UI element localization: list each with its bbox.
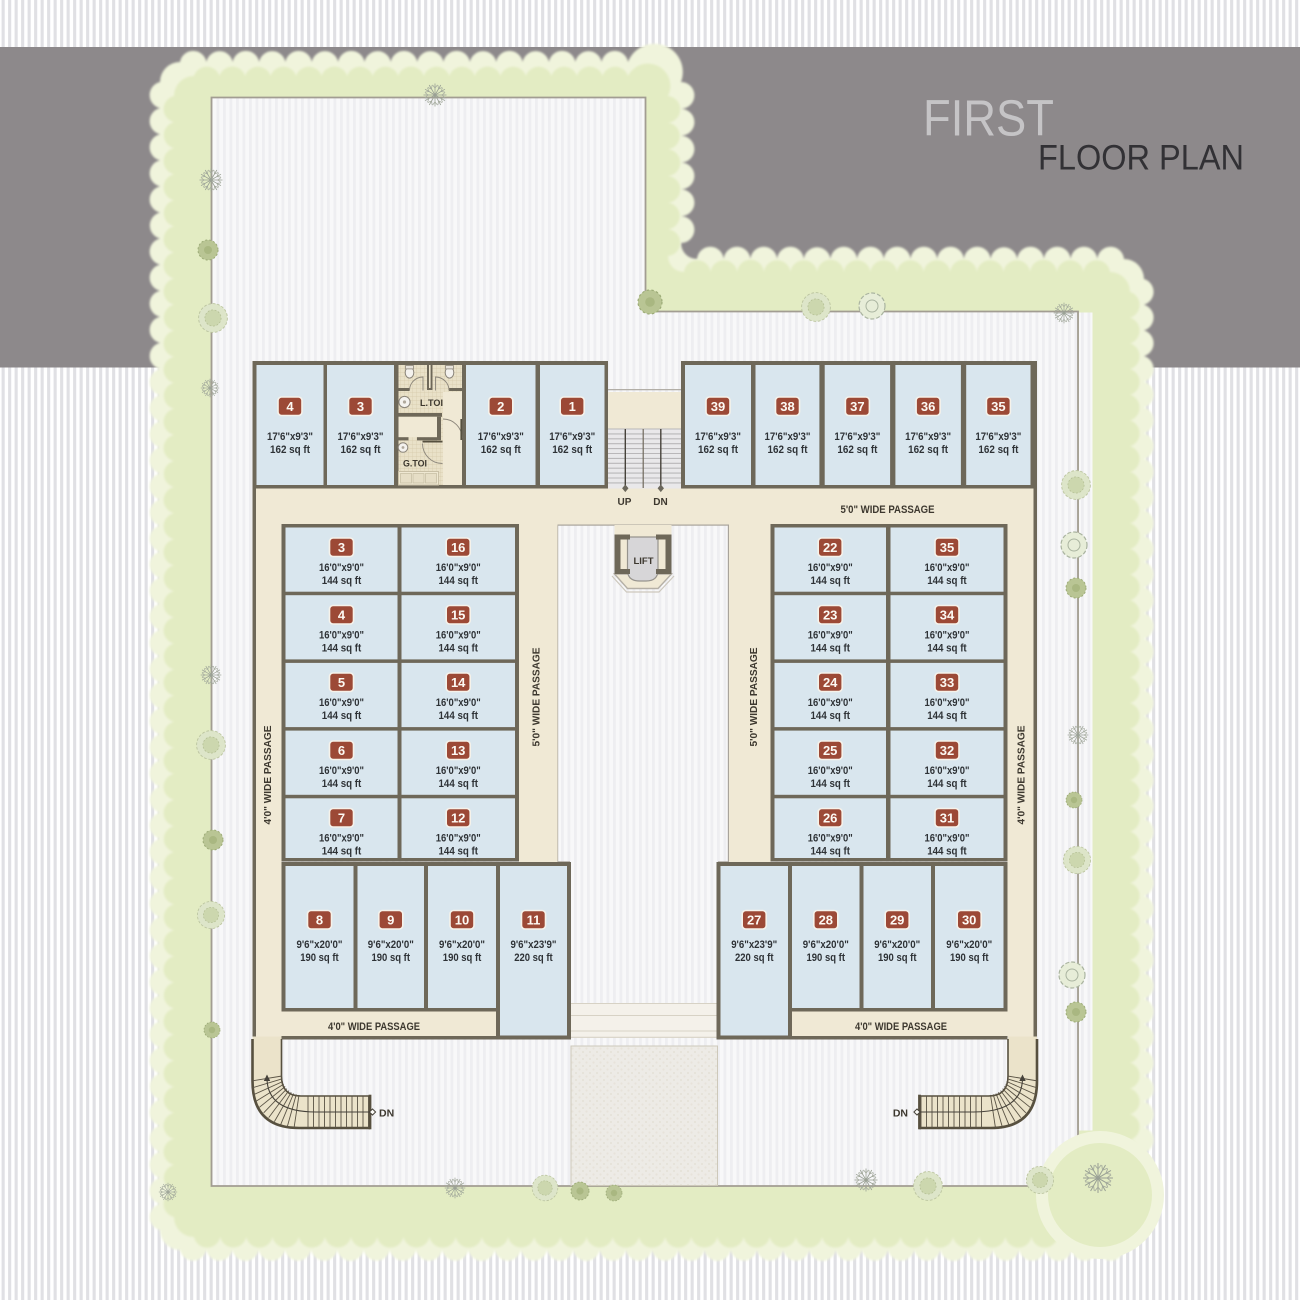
svg-text:190 sq ft: 190 sq ft [878,952,917,964]
svg-text:12: 12 [451,811,465,826]
svg-text:36: 36 [921,399,935,414]
svg-text:16'0"x9'0": 16'0"x9'0" [925,697,970,709]
svg-text:FIRST: FIRST [923,90,1054,147]
svg-text:6: 6 [338,743,345,758]
svg-text:17'6"x9'3": 17'6"x9'3" [695,431,741,443]
svg-text:29: 29 [890,913,904,928]
svg-text:144 sq ft: 144 sq ft [927,846,967,858]
svg-text:17'6"x9'3": 17'6"x9'3" [549,431,595,443]
svg-text:10: 10 [455,913,469,928]
svg-text:9'6"x23'9": 9'6"x23'9" [731,939,777,951]
svg-text:34: 34 [940,608,955,623]
svg-text:144 sq ft: 144 sq ft [439,778,479,790]
svg-text:16'0"x9'0": 16'0"x9'0" [808,833,853,845]
svg-text:24: 24 [823,675,838,690]
svg-text:16'0"x9'0": 16'0"x9'0" [436,833,481,845]
svg-text:9'6"x20'0": 9'6"x20'0" [946,939,992,951]
svg-text:35: 35 [940,540,954,555]
svg-text:16'0"x9'0": 16'0"x9'0" [808,630,853,642]
svg-text:17'6"x9'3": 17'6"x9'3" [338,431,384,443]
svg-text:L.TOI: L.TOI [420,398,443,408]
svg-text:15: 15 [451,608,465,623]
svg-text:16'0"x9'0": 16'0"x9'0" [319,562,364,574]
svg-text:9'6"x20'0": 9'6"x20'0" [297,939,343,951]
svg-text:144 sq ft: 144 sq ft [322,846,362,858]
svg-text:16'0"x9'0": 16'0"x9'0" [319,765,364,777]
svg-text:17'6"x9'3": 17'6"x9'3" [834,431,880,443]
svg-text:DN: DN [893,1108,908,1120]
svg-text:25: 25 [823,743,837,758]
svg-text:LIFT: LIFT [633,556,653,567]
svg-text:4: 4 [286,399,294,414]
svg-text:1: 1 [569,399,576,414]
svg-text:5: 5 [338,675,345,690]
svg-text:162 sq ft: 162 sq ft [837,444,877,456]
svg-text:144 sq ft: 144 sq ft [811,846,851,858]
svg-text:27: 27 [747,913,761,928]
svg-text:37: 37 [850,399,864,414]
svg-text:8: 8 [316,913,323,928]
svg-text:FLOOR PLAN: FLOOR PLAN [1038,138,1244,178]
svg-text:162 sq ft: 162 sq ft [698,444,738,456]
svg-text:162 sq ft: 162 sq ft [978,444,1018,456]
svg-text:4'0" WIDE PASSAGE: 4'0" WIDE PASSAGE [1016,726,1028,825]
svg-text:16'0"x9'0": 16'0"x9'0" [319,630,364,642]
svg-text:31: 31 [940,811,954,826]
svg-text:16'0"x9'0": 16'0"x9'0" [808,765,853,777]
svg-text:5'0" WIDE PASSAGE: 5'0" WIDE PASSAGE [531,648,543,747]
svg-text:190 sq ft: 190 sq ft [300,952,339,964]
svg-text:16'0"x9'0": 16'0"x9'0" [319,833,364,845]
svg-text:3: 3 [338,540,345,555]
svg-text:3: 3 [357,399,364,414]
svg-text:9'6"x20'0": 9'6"x20'0" [803,939,849,951]
svg-text:144 sq ft: 144 sq ft [322,710,362,722]
svg-text:144 sq ft: 144 sq ft [927,643,967,655]
svg-text:144 sq ft: 144 sq ft [811,643,851,655]
svg-text:9'6"x20'0": 9'6"x20'0" [874,939,920,951]
svg-text:4'0" WIDE PASSAGE: 4'0" WIDE PASSAGE [855,1021,947,1033]
svg-text:144 sq ft: 144 sq ft [439,643,479,655]
svg-text:144 sq ft: 144 sq ft [811,778,851,790]
svg-text:4: 4 [338,608,346,623]
svg-text:17'6"x9'3": 17'6"x9'3" [478,431,524,443]
svg-text:162 sq ft: 162 sq ft [908,444,948,456]
svg-text:144 sq ft: 144 sq ft [927,778,967,790]
svg-text:16'0"x9'0": 16'0"x9'0" [808,562,853,574]
svg-text:16'0"x9'0": 16'0"x9'0" [319,697,364,709]
svg-text:144 sq ft: 144 sq ft [322,575,362,587]
svg-text:16'0"x9'0": 16'0"x9'0" [925,630,970,642]
svg-text:144 sq ft: 144 sq ft [439,846,479,858]
svg-text:16: 16 [451,540,465,555]
svg-text:190 sq ft: 190 sq ft [950,952,989,964]
svg-text:14: 14 [451,675,466,690]
svg-text:5'0" WIDE PASSAGE: 5'0" WIDE PASSAGE [748,648,760,747]
svg-text:22: 22 [823,540,837,555]
svg-text:190 sq ft: 190 sq ft [807,952,846,964]
svg-text:32: 32 [940,743,954,758]
svg-text:16'0"x9'0": 16'0"x9'0" [925,562,970,574]
svg-text:162 sq ft: 162 sq ft [481,444,521,456]
svg-text:16'0"x9'0": 16'0"x9'0" [925,765,970,777]
svg-text:162 sq ft: 162 sq ft [341,444,381,456]
svg-text:39: 39 [711,399,725,414]
svg-text:220 sq ft: 220 sq ft [735,952,774,964]
svg-text:144 sq ft: 144 sq ft [322,778,362,790]
svg-text:16'0"x9'0": 16'0"x9'0" [436,697,481,709]
svg-text:35: 35 [991,399,1005,414]
svg-text:9'6"x20'0": 9'6"x20'0" [368,939,414,951]
svg-text:9'6"x23'9": 9'6"x23'9" [511,939,557,951]
svg-text:9: 9 [387,913,394,928]
svg-text:190 sq ft: 190 sq ft [443,952,482,964]
svg-text:16'0"x9'0": 16'0"x9'0" [808,697,853,709]
svg-text:144 sq ft: 144 sq ft [811,710,851,722]
svg-text:11: 11 [527,913,541,928]
svg-text:33: 33 [940,675,954,690]
svg-text:9'6"x20'0": 9'6"x20'0" [439,939,485,951]
svg-text:13: 13 [451,743,465,758]
svg-text:190 sq ft: 190 sq ft [372,952,411,964]
svg-text:26: 26 [823,811,837,826]
svg-text:16'0"x9'0": 16'0"x9'0" [436,765,481,777]
svg-text:162 sq ft: 162 sq ft [768,444,808,456]
svg-text:17'6"x9'3": 17'6"x9'3" [267,431,313,443]
svg-text:23: 23 [823,608,837,623]
svg-text:16'0"x9'0": 16'0"x9'0" [436,630,481,642]
svg-text:162 sq ft: 162 sq ft [552,444,592,456]
svg-text:144 sq ft: 144 sq ft [439,575,479,587]
svg-text:DN: DN [653,497,667,508]
svg-text:DN: DN [379,1108,394,1120]
svg-text:144 sq ft: 144 sq ft [927,575,967,587]
svg-text:144 sq ft: 144 sq ft [322,643,362,655]
svg-text:4'0" WIDE PASSAGE: 4'0" WIDE PASSAGE [262,726,274,825]
svg-text:5'0" WIDE PASSAGE: 5'0" WIDE PASSAGE [841,504,935,516]
svg-text:7: 7 [338,811,345,826]
svg-text:38: 38 [780,399,794,414]
svg-text:4'0" WIDE PASSAGE: 4'0" WIDE PASSAGE [328,1021,420,1033]
svg-text:G.TOI: G.TOI [403,459,427,469]
svg-text:144 sq ft: 144 sq ft [439,710,479,722]
svg-text:144 sq ft: 144 sq ft [811,575,851,587]
svg-text:UP: UP [618,497,632,508]
svg-text:162 sq ft: 162 sq ft [270,444,310,456]
svg-text:28: 28 [819,913,833,928]
svg-text:16'0"x9'0": 16'0"x9'0" [925,833,970,845]
svg-text:17'6"x9'3": 17'6"x9'3" [765,431,811,443]
svg-text:16'0"x9'0": 16'0"x9'0" [436,562,481,574]
svg-text:220 sq ft: 220 sq ft [514,952,553,964]
svg-text:144 sq ft: 144 sq ft [927,710,967,722]
svg-text:30: 30 [962,913,976,928]
svg-text:2: 2 [497,399,504,414]
svg-text:17'6"x9'3": 17'6"x9'3" [905,431,951,443]
svg-text:17'6"x9'3": 17'6"x9'3" [975,431,1021,443]
